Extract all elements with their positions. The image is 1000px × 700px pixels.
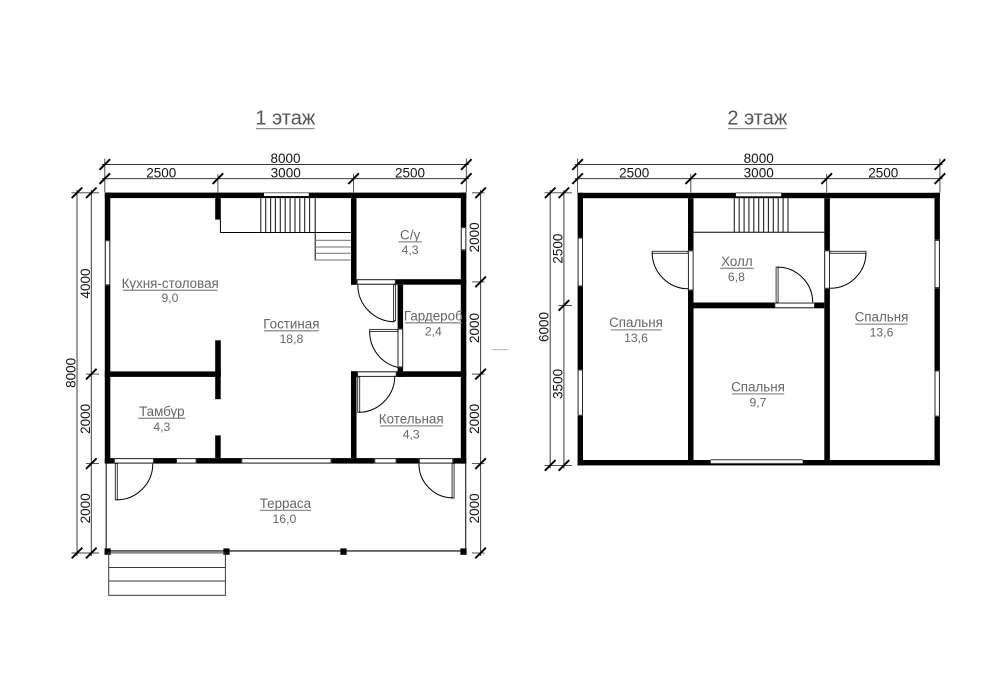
svg-text:2000: 2000 (78, 493, 93, 523)
svg-text:Кухня-столовая: Кухня-столовая (122, 276, 219, 291)
svg-text:2,4: 2,4 (425, 324, 442, 338)
svg-text:Холл: Холл (721, 254, 753, 269)
svg-text:2500: 2500 (868, 165, 898, 180)
svg-text:8000: 8000 (744, 151, 774, 166)
svg-text:4,3: 4,3 (402, 243, 419, 257)
svg-text:2000: 2000 (467, 493, 482, 523)
svg-text:2000: 2000 (467, 404, 482, 434)
svg-text:2500: 2500 (395, 165, 425, 180)
svg-text:С/у: С/у (400, 227, 420, 242)
svg-text:3000: 3000 (271, 165, 301, 180)
svg-text:Гостиная: Гостиная (263, 316, 319, 331)
svg-text:4000: 4000 (78, 268, 93, 298)
svg-text:2500: 2500 (146, 165, 176, 180)
svg-text:2000: 2000 (467, 313, 482, 343)
svg-text:3000: 3000 (744, 165, 774, 180)
svg-text:9,7: 9,7 (750, 395, 767, 409)
svg-text:2 этаж: 2 этаж (727, 108, 788, 130)
svg-text:4,3: 4,3 (403, 427, 420, 441)
svg-text:3500: 3500 (550, 369, 565, 399)
svg-text:Котельная: Котельная (379, 411, 444, 426)
svg-text:Спальня: Спальня (855, 310, 909, 325)
svg-text:2500: 2500 (619, 165, 649, 180)
svg-text:13,6: 13,6 (624, 331, 648, 345)
svg-text:16,0: 16,0 (273, 512, 297, 526)
svg-text:6000: 6000 (537, 312, 552, 342)
svg-text:2500: 2500 (550, 234, 565, 264)
svg-text:Гардероб: Гардероб (404, 308, 463, 323)
svg-text:8000: 8000 (270, 151, 300, 166)
svg-text:1 этаж: 1 этаж (255, 108, 316, 130)
svg-text:9,0: 9,0 (162, 291, 179, 305)
svg-text:2000: 2000 (78, 404, 93, 434)
svg-text:13,6: 13,6 (870, 326, 894, 340)
svg-text:Спальня: Спальня (609, 315, 663, 330)
svg-text:8000: 8000 (63, 358, 78, 388)
svg-text:18,8: 18,8 (280, 332, 304, 346)
svg-text:4,3: 4,3 (153, 420, 170, 434)
svg-text:2000: 2000 (467, 222, 482, 252)
svg-text:Спальня: Спальня (731, 379, 785, 394)
svg-text:Тамбур: Тамбур (139, 404, 184, 419)
svg-text:6,8: 6,8 (728, 270, 745, 284)
svg-text:Терраса: Терраса (260, 496, 312, 511)
